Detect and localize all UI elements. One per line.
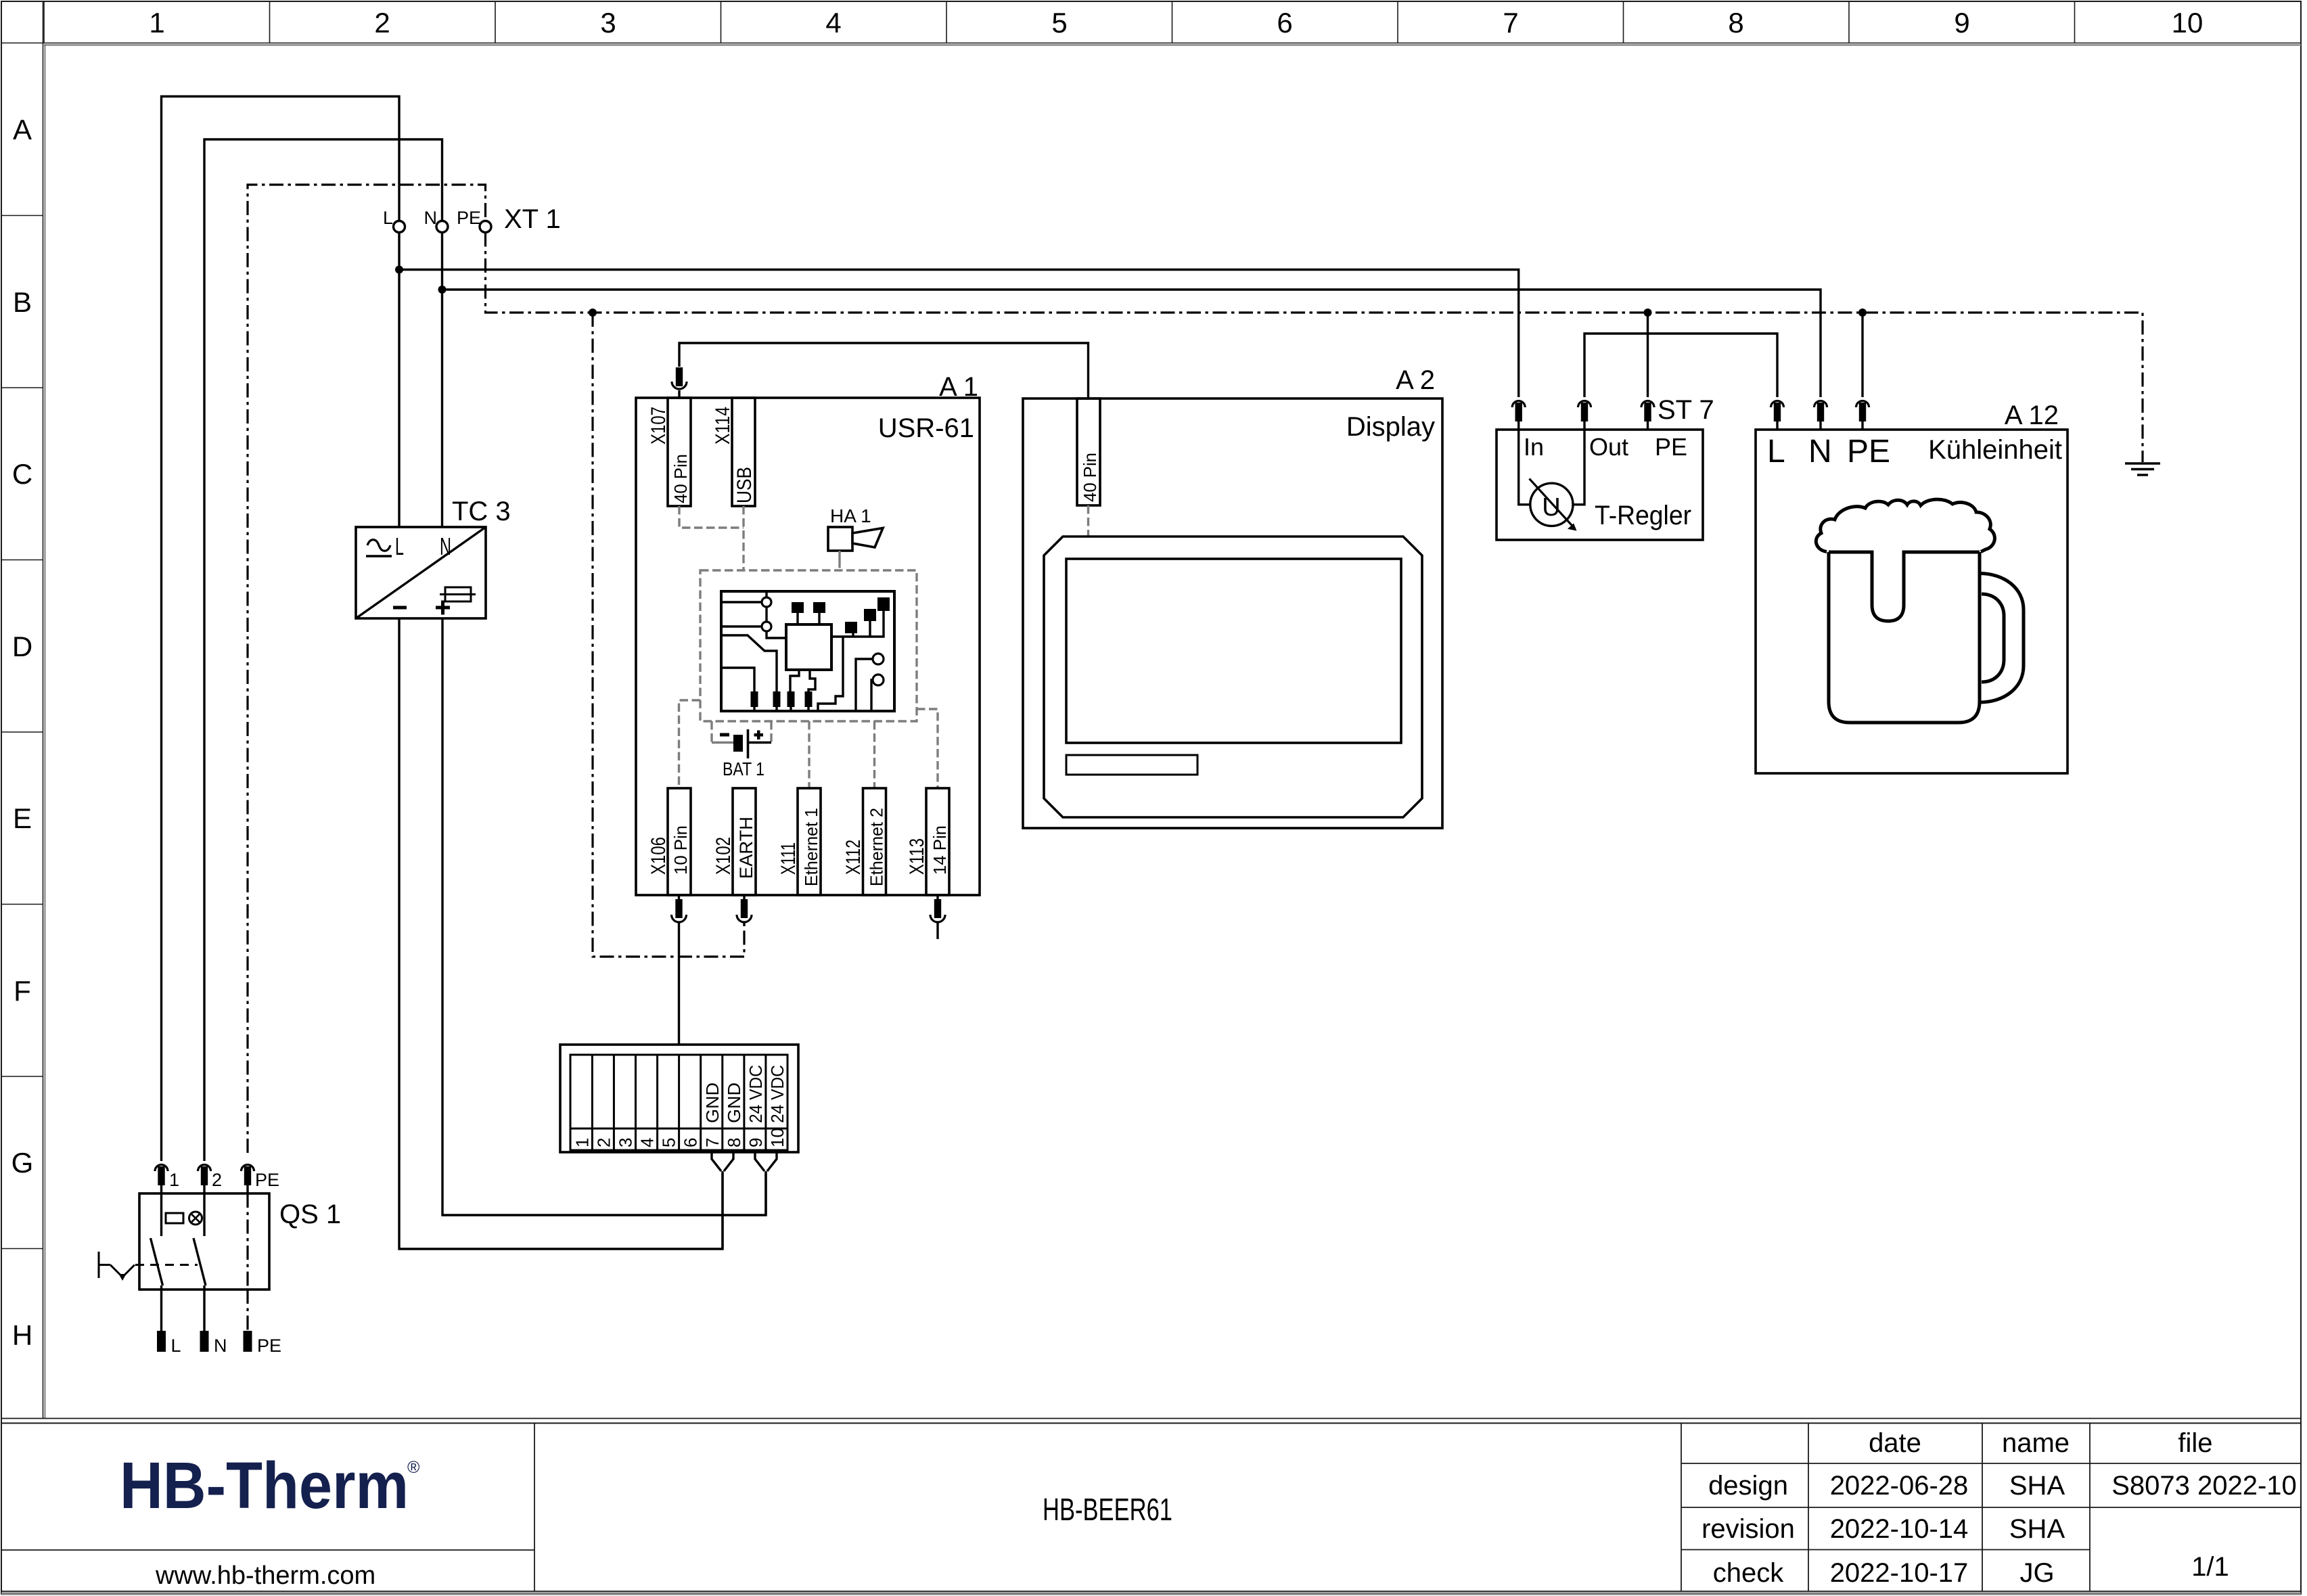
svg-text:C: C (12, 458, 32, 490)
svg-text:In: In (1524, 433, 1544, 461)
svg-text:4: 4 (825, 7, 841, 39)
svg-text:L: L (171, 1336, 181, 1356)
svg-text:14 Pin: 14 Pin (930, 825, 950, 875)
svg-text:X113: X113 (906, 838, 928, 875)
svg-text:PE: PE (1847, 434, 1890, 470)
svg-text:N: N (214, 1336, 227, 1356)
svg-text:N: N (1808, 434, 1832, 470)
svg-text:40 Pin: 40 Pin (670, 454, 691, 503)
svg-text:T-Regler: T-Regler (1595, 501, 1691, 530)
svg-text:HB-BEER61: HB-BEER61 (1043, 1492, 1172, 1527)
svg-text:1: 1 (169, 1170, 179, 1190)
svg-text:Ethernet 1: Ethernet 1 (801, 808, 821, 886)
svg-text:file: file (2178, 1428, 2212, 1458)
svg-text:Kühleinheit: Kühleinheit (1928, 435, 2062, 465)
svg-text:GND: GND (724, 1082, 744, 1123)
svg-text:X111: X111 (777, 842, 800, 875)
svg-text:X106: X106 (647, 837, 670, 875)
svg-text:24 VDC: 24 VDC (746, 1065, 766, 1123)
svg-text:check: check (1713, 1558, 1784, 1588)
svg-text:N: N (424, 208, 438, 228)
svg-text:8: 8 (1728, 7, 1743, 39)
svg-text:USR-61: USR-61 (878, 413, 974, 443)
svg-text:24 VDC: 24 VDC (767, 1065, 787, 1123)
svg-text:2022-10-17: 2022-10-17 (1830, 1558, 1969, 1588)
svg-text:TC 3: TC 3 (452, 497, 511, 526)
svg-text:design: design (1708, 1471, 1788, 1501)
svg-text:D: D (12, 631, 32, 662)
svg-text:L: L (1767, 434, 1785, 470)
svg-text:6: 6 (681, 1138, 701, 1147)
svg-text:8: 8 (724, 1138, 744, 1147)
svg-text:U: U (1542, 493, 1560, 522)
svg-text:7: 7 (1503, 7, 1518, 39)
svg-text:HA 1: HA 1 (830, 505, 871, 526)
svg-text:SHA: SHA (2009, 1514, 2065, 1544)
svg-text:H: H (12, 1319, 32, 1351)
svg-text:B: B (13, 286, 32, 318)
svg-text:G: G (12, 1147, 34, 1179)
svg-text:A 1: A 1 (939, 372, 978, 402)
svg-text:40 Pin: 40 Pin (1080, 453, 1100, 502)
svg-text:HB-Therm: HB-Therm (120, 1449, 409, 1522)
svg-text:1/1: 1/1 (2191, 1552, 2229, 1582)
svg-text:L: L (395, 532, 404, 560)
svg-text:ST 7: ST 7 (1658, 395, 1714, 425)
svg-text:2: 2 (374, 7, 390, 39)
svg-text:A: A (13, 114, 32, 145)
svg-text:name: name (2002, 1428, 2070, 1458)
svg-text:L: L (383, 208, 393, 228)
svg-text:PE: PE (257, 1336, 281, 1356)
svg-text:GND: GND (702, 1082, 723, 1123)
svg-text:X112: X112 (842, 840, 865, 875)
svg-text:9: 9 (746, 1138, 766, 1147)
svg-text:10: 10 (2172, 7, 2203, 39)
svg-text:1: 1 (572, 1138, 592, 1147)
svg-text:6: 6 (1277, 7, 1292, 39)
svg-text:Ethernet 2: Ethernet 2 (867, 808, 887, 886)
svg-text:QS 1: QS 1 (279, 1200, 341, 1229)
svg-text:USB: USB (733, 467, 756, 503)
svg-text:5: 5 (1051, 7, 1067, 39)
svg-text:PE: PE (457, 208, 481, 228)
svg-text:3: 3 (600, 7, 616, 39)
svg-text:Display: Display (1346, 412, 1435, 442)
svg-text:®: ® (407, 1458, 420, 1477)
svg-text:4: 4 (637, 1138, 658, 1147)
svg-text:www.hb-therm.com: www.hb-therm.com (155, 1561, 375, 1590)
svg-text:JG: JG (2019, 1558, 2054, 1588)
svg-text:S8073 2022-10: S8073 2022-10 (2111, 1471, 2297, 1501)
svg-text:9: 9 (1954, 7, 1969, 39)
svg-text:E: E (13, 802, 32, 834)
svg-text:X102: X102 (712, 837, 735, 875)
svg-text:2022-10-14: 2022-10-14 (1830, 1514, 1969, 1544)
svg-text:10: 10 (767, 1128, 787, 1147)
svg-text:X107: X107 (647, 407, 670, 444)
svg-text:2: 2 (212, 1170, 222, 1190)
svg-text:1: 1 (149, 7, 164, 39)
svg-text:PE: PE (1655, 433, 1687, 461)
svg-text:XT 1: XT 1 (504, 204, 561, 234)
svg-text:Out: Out (1589, 433, 1628, 461)
svg-text:7: 7 (702, 1138, 723, 1147)
svg-text:PE: PE (255, 1170, 279, 1190)
svg-text:F: F (14, 975, 31, 1007)
svg-text:A 12: A 12 (2005, 401, 2059, 430)
svg-text:BAT 1: BAT 1 (723, 758, 764, 779)
svg-text:SHA: SHA (2009, 1471, 2065, 1501)
svg-text:revision: revision (1701, 1514, 1795, 1544)
svg-text:5: 5 (659, 1138, 679, 1147)
svg-text:2022-06-28: 2022-06-28 (1830, 1471, 1969, 1501)
svg-text:10 Pin: 10 Pin (670, 825, 691, 875)
svg-text:X114: X114 (712, 407, 734, 444)
svg-text:3: 3 (615, 1138, 635, 1147)
svg-text:N: N (440, 532, 451, 560)
svg-text:A 2: A 2 (1396, 365, 1435, 395)
svg-text:date: date (1869, 1428, 1921, 1458)
svg-text:2: 2 (593, 1138, 614, 1147)
svg-text:EARTH: EARTH (736, 817, 756, 879)
